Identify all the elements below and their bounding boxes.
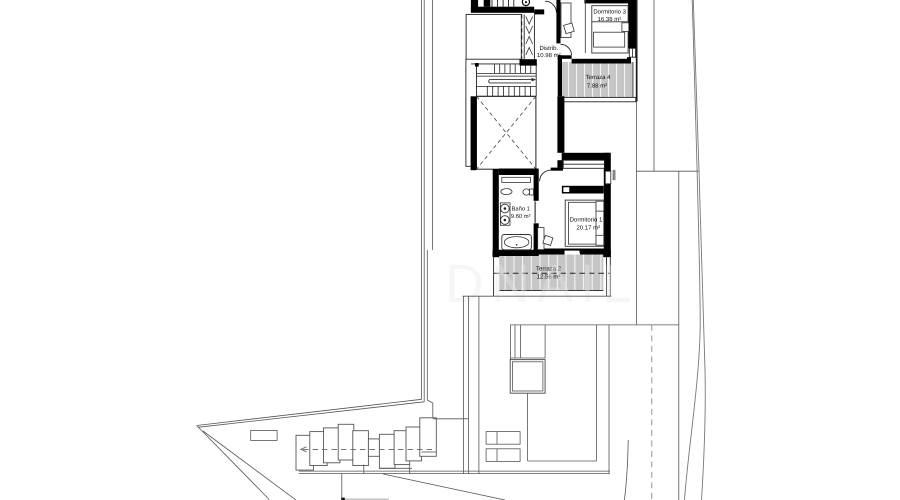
- svg-text:16.38 m²: 16.38 m²: [598, 16, 622, 23]
- svg-text:Distrib.: Distrib.: [539, 45, 558, 52]
- svg-text:Baño 1: Baño 1: [512, 206, 530, 213]
- svg-text:Dormitorio 1: Dormitorio 1: [570, 217, 603, 224]
- svg-text:Dormitorio 3: Dormitorio 3: [593, 9, 626, 16]
- svg-text:Terraza 4: Terraza 4: [585, 74, 611, 81]
- svg-text:9.60 m²: 9.60 m²: [511, 213, 531, 220]
- svg-text:20.17 m²: 20.17 m²: [576, 224, 600, 231]
- svg-text:10.98 m²: 10.98 m²: [537, 52, 561, 59]
- svg-text:DNAIL: DNAIL: [445, 254, 639, 314]
- svg-text:7.88 m²: 7.88 m²: [587, 83, 607, 90]
